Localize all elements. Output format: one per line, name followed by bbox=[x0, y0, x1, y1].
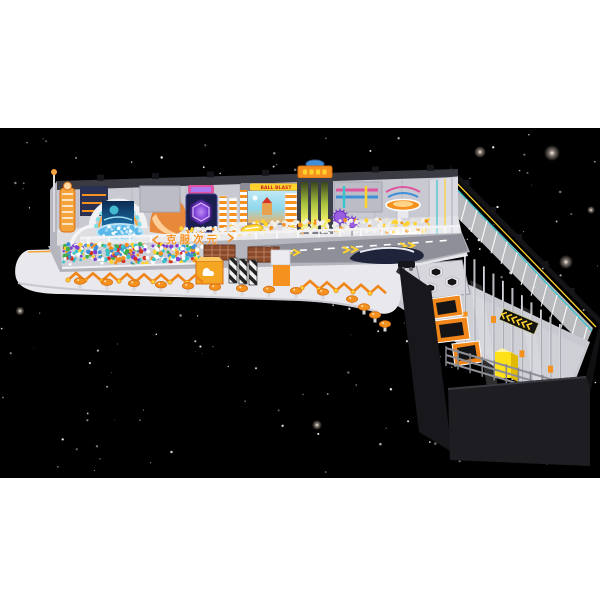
sign-glyph bbox=[316, 170, 320, 175]
star bbox=[302, 394, 303, 395]
pool-ball bbox=[121, 232, 124, 235]
truss-dot bbox=[334, 289, 338, 293]
stool-cap bbox=[101, 279, 112, 286]
pit-ball bbox=[400, 221, 403, 224]
pit-ball bbox=[212, 228, 215, 231]
star bbox=[406, 340, 408, 342]
crowd-ball bbox=[182, 257, 186, 261]
star bbox=[43, 138, 44, 139]
star bbox=[597, 266, 598, 267]
star bbox=[526, 172, 528, 174]
star bbox=[86, 419, 88, 421]
pit-ball bbox=[236, 226, 240, 230]
star bbox=[170, 451, 173, 454]
pit-ball bbox=[319, 221, 323, 225]
crowd-ball bbox=[114, 244, 117, 247]
star bbox=[273, 166, 275, 168]
star bbox=[62, 438, 64, 440]
truss-dot bbox=[66, 278, 70, 282]
crowd-ball bbox=[78, 243, 82, 247]
crowd-ball bbox=[122, 256, 126, 260]
wall-nub bbox=[372, 166, 379, 172]
crowd-ball bbox=[114, 247, 118, 251]
crowd-ball bbox=[137, 258, 140, 261]
star bbox=[156, 334, 158, 336]
star bbox=[355, 384, 357, 386]
crowd-ball bbox=[100, 261, 103, 264]
crowd-ball bbox=[103, 244, 107, 248]
pole-pad bbox=[548, 366, 553, 373]
star bbox=[459, 460, 461, 462]
stool-cap bbox=[209, 284, 220, 291]
ball-screen-title: BALL BLAST bbox=[261, 185, 293, 191]
crowd-ball bbox=[160, 246, 164, 250]
crowd-ball bbox=[133, 257, 137, 261]
pit-ball bbox=[229, 223, 232, 226]
pole-pad bbox=[491, 316, 496, 323]
pipe-machinery-wall bbox=[334, 182, 382, 212]
sign-glyph bbox=[310, 170, 314, 175]
star bbox=[2, 397, 4, 399]
star bbox=[583, 309, 585, 311]
crowd-ball bbox=[125, 249, 130, 254]
star bbox=[325, 471, 327, 473]
led-hexagon-climber bbox=[186, 185, 217, 232]
pit-ball bbox=[270, 223, 273, 226]
star bbox=[559, 274, 561, 276]
crowd-ball bbox=[114, 261, 117, 264]
crowd-ball bbox=[62, 250, 64, 252]
crowd-ball bbox=[81, 247, 84, 250]
disc-center bbox=[393, 201, 413, 207]
pit-ball bbox=[201, 229, 204, 232]
crowd-ball bbox=[93, 258, 96, 261]
stool-cap bbox=[236, 285, 247, 292]
star bbox=[276, 164, 277, 165]
stool-cap bbox=[128, 280, 139, 287]
crowd-ball bbox=[66, 247, 70, 251]
stool-highlight bbox=[382, 322, 384, 324]
pit-ball bbox=[425, 224, 428, 227]
star bbox=[99, 458, 100, 459]
glow-star bbox=[16, 307, 25, 316]
turnstile-bar bbox=[239, 259, 247, 284]
star bbox=[377, 330, 379, 332]
crowd-ball bbox=[62, 261, 65, 264]
star bbox=[197, 315, 198, 316]
star bbox=[440, 356, 441, 357]
star bbox=[429, 441, 431, 443]
crowd-ball bbox=[121, 245, 124, 248]
star bbox=[212, 346, 213, 347]
stool-highlight bbox=[239, 286, 241, 288]
stool-cap bbox=[182, 283, 193, 290]
crowd-ball bbox=[109, 260, 113, 264]
crowd-ball bbox=[143, 248, 146, 251]
crowd-ball bbox=[152, 257, 156, 261]
crowd-ball bbox=[143, 244, 146, 247]
stool-cap bbox=[379, 321, 390, 328]
pool-ball bbox=[113, 225, 116, 228]
pit-ball bbox=[421, 220, 424, 223]
tower-top bbox=[64, 182, 72, 190]
star bbox=[332, 304, 334, 306]
star bbox=[369, 150, 371, 152]
star bbox=[143, 410, 144, 411]
stool-cap bbox=[317, 289, 328, 296]
rover-wheel bbox=[409, 267, 413, 271]
crowd-ball bbox=[107, 242, 111, 246]
stool-cap bbox=[155, 281, 166, 288]
star bbox=[45, 140, 47, 142]
stool-highlight bbox=[212, 285, 214, 287]
crowd-ball bbox=[75, 250, 78, 253]
pit-ball bbox=[179, 226, 183, 230]
crowd-ball bbox=[197, 252, 200, 255]
pit-ball bbox=[276, 220, 279, 223]
pool-ball bbox=[135, 228, 139, 232]
crowd-ball bbox=[72, 252, 75, 255]
truss-dot bbox=[351, 290, 355, 294]
pit-ball bbox=[298, 223, 302, 227]
stool-cap bbox=[290, 287, 301, 294]
crowd-ball bbox=[114, 252, 118, 256]
pit-ball bbox=[375, 217, 379, 221]
crowd-ball bbox=[138, 242, 142, 246]
stool-highlight bbox=[349, 297, 351, 299]
star bbox=[1, 328, 3, 330]
stool-highlight bbox=[293, 289, 295, 291]
pole-pad bbox=[520, 350, 525, 357]
crowd-ball bbox=[69, 263, 72, 266]
fascia-sign-text: 克服次元 bbox=[166, 233, 220, 246]
star bbox=[76, 448, 78, 450]
roller-column bbox=[219, 196, 227, 232]
stool-cap bbox=[263, 286, 274, 293]
pool-ball bbox=[105, 233, 108, 236]
truss-dot bbox=[168, 280, 172, 284]
pit-ball bbox=[327, 219, 330, 222]
star bbox=[29, 207, 30, 208]
pool-ball bbox=[117, 227, 121, 231]
crowd-ball bbox=[87, 244, 90, 247]
crowd-ball bbox=[136, 254, 139, 257]
pit-ball bbox=[229, 227, 233, 231]
pit-ball bbox=[305, 220, 308, 223]
rail-nub bbox=[490, 207, 496, 213]
pool-ball bbox=[125, 231, 128, 234]
pool-ball bbox=[138, 229, 141, 232]
crowd-ball bbox=[146, 249, 150, 253]
star bbox=[255, 367, 257, 369]
crowd-ball bbox=[175, 257, 180, 262]
pool-ball bbox=[110, 228, 113, 231]
pit-ball bbox=[308, 221, 311, 224]
star bbox=[114, 420, 115, 421]
star bbox=[523, 231, 524, 232]
star bbox=[281, 425, 283, 427]
pit-ball bbox=[316, 224, 319, 227]
star bbox=[23, 188, 24, 189]
star bbox=[556, 221, 558, 223]
pit-ball bbox=[377, 224, 380, 227]
star bbox=[33, 348, 34, 349]
pit-ball bbox=[343, 218, 347, 222]
truss-dot bbox=[151, 280, 155, 284]
star bbox=[559, 191, 562, 194]
star bbox=[327, 393, 329, 395]
star bbox=[75, 157, 77, 159]
crowd-ball bbox=[134, 246, 139, 251]
star bbox=[203, 166, 205, 168]
stool-cap bbox=[369, 312, 380, 319]
pit-ball bbox=[355, 225, 358, 228]
lamp-bulb bbox=[51, 169, 57, 175]
crowd-ball bbox=[83, 257, 86, 260]
star bbox=[26, 142, 27, 143]
crowd-ball bbox=[146, 256, 150, 260]
pit-ball bbox=[304, 227, 306, 229]
pit-ball bbox=[334, 222, 337, 225]
star bbox=[117, 343, 118, 344]
crowd-ball bbox=[79, 259, 82, 262]
pit-ball bbox=[264, 222, 269, 227]
rail-nub bbox=[464, 180, 470, 186]
star bbox=[228, 366, 229, 367]
glow-star bbox=[544, 145, 560, 161]
crowd-ball bbox=[137, 261, 140, 264]
playground-render: BALL BLAST bbox=[0, 0, 600, 600]
star bbox=[195, 351, 196, 352]
rover bbox=[398, 261, 415, 268]
screen-planet bbox=[110, 206, 119, 215]
truss-dot bbox=[368, 291, 372, 295]
machinery-panel bbox=[140, 186, 180, 212]
star bbox=[160, 156, 162, 158]
pool-ball bbox=[131, 227, 134, 230]
rail-nub bbox=[542, 261, 548, 267]
star bbox=[139, 420, 140, 421]
star bbox=[390, 388, 393, 391]
crowd-ball bbox=[98, 258, 101, 261]
crowd-ball bbox=[130, 243, 134, 247]
truss-dot bbox=[117, 279, 121, 283]
star bbox=[97, 349, 99, 351]
pit-ball bbox=[288, 222, 292, 226]
pillar-top bbox=[271, 250, 290, 265]
pit-ball bbox=[191, 227, 194, 230]
front-wall bbox=[448, 376, 590, 466]
star bbox=[531, 185, 532, 186]
stool-cap bbox=[358, 304, 369, 311]
star bbox=[57, 466, 58, 467]
star bbox=[194, 340, 196, 342]
crowd-ball bbox=[186, 247, 190, 251]
crowd-ball bbox=[156, 248, 159, 251]
star bbox=[528, 134, 529, 135]
star bbox=[204, 144, 206, 146]
crowd-ball bbox=[181, 254, 184, 257]
pit-ball bbox=[196, 230, 200, 234]
star bbox=[89, 362, 91, 364]
star bbox=[111, 372, 112, 373]
crowd-ball bbox=[125, 243, 129, 247]
star bbox=[467, 239, 468, 240]
screen-cloud bbox=[253, 196, 258, 201]
star bbox=[469, 178, 471, 180]
star bbox=[347, 371, 350, 374]
pit-ball bbox=[349, 219, 353, 223]
pit-ball bbox=[238, 222, 242, 226]
sign-glyph bbox=[303, 170, 307, 175]
pit-ball bbox=[310, 224, 312, 226]
crowd-ball bbox=[74, 257, 77, 260]
star bbox=[451, 366, 453, 368]
crowd-ball bbox=[98, 250, 102, 254]
pit-ball bbox=[223, 227, 226, 230]
pit-ball bbox=[388, 221, 391, 224]
pit-ball bbox=[269, 226, 273, 230]
crowd-ball bbox=[80, 255, 83, 258]
crowd-ball bbox=[139, 249, 144, 254]
star bbox=[39, 312, 40, 313]
pit-ball bbox=[383, 219, 385, 221]
corner-pillar bbox=[271, 250, 290, 286]
entry-turnstile bbox=[229, 258, 257, 285]
pit-ball bbox=[368, 222, 371, 225]
pit-ball bbox=[427, 218, 429, 220]
star bbox=[492, 146, 494, 148]
star bbox=[404, 323, 405, 324]
star bbox=[434, 442, 437, 445]
star bbox=[397, 137, 399, 139]
star bbox=[87, 412, 89, 414]
star bbox=[549, 265, 550, 266]
stool-highlight bbox=[372, 313, 374, 315]
star bbox=[379, 443, 382, 446]
star bbox=[519, 170, 520, 171]
star bbox=[96, 445, 98, 447]
crowd-ball bbox=[158, 251, 163, 256]
pit-ball bbox=[394, 220, 398, 224]
turnstile-bar bbox=[249, 260, 257, 285]
pit-ball bbox=[294, 225, 296, 227]
crowd-ball bbox=[132, 251, 135, 254]
screen-column bbox=[240, 190, 247, 225]
star bbox=[278, 409, 280, 411]
crowd-ball bbox=[91, 246, 94, 249]
star bbox=[350, 334, 351, 335]
pool-ball bbox=[98, 231, 102, 235]
crowd-ball bbox=[180, 247, 184, 251]
stool-highlight bbox=[104, 280, 106, 282]
star bbox=[325, 138, 327, 140]
crowd-ball bbox=[119, 253, 122, 256]
pool-ball bbox=[107, 225, 111, 229]
turnstile-bar bbox=[229, 258, 237, 283]
wall-nub bbox=[262, 170, 269, 176]
star bbox=[219, 173, 221, 175]
crowd-ball bbox=[189, 253, 193, 257]
star bbox=[131, 161, 132, 162]
pool-ball bbox=[123, 227, 126, 230]
screen-castle bbox=[262, 203, 272, 215]
star bbox=[294, 169, 297, 172]
wall-nub bbox=[427, 165, 434, 171]
crowd-ball bbox=[185, 251, 188, 254]
star bbox=[523, 154, 525, 156]
pillar-front bbox=[273, 265, 290, 286]
stool-highlight bbox=[77, 279, 79, 281]
star bbox=[496, 206, 498, 208]
stool-cap bbox=[346, 296, 357, 303]
pool-ball bbox=[126, 225, 130, 229]
star bbox=[244, 400, 245, 401]
star bbox=[493, 224, 494, 225]
star bbox=[385, 428, 386, 429]
crowd-ball bbox=[75, 245, 79, 249]
stool-highlight bbox=[158, 283, 160, 285]
star bbox=[542, 268, 544, 270]
sign-glyph bbox=[323, 170, 327, 175]
wall-nub bbox=[207, 171, 214, 177]
hex-sign-screen bbox=[191, 187, 211, 192]
star bbox=[106, 386, 108, 388]
crowd-ball bbox=[195, 248, 199, 252]
star bbox=[594, 161, 595, 162]
star bbox=[595, 382, 597, 384]
glow-star bbox=[559, 255, 573, 269]
star bbox=[23, 182, 25, 184]
wall-nub bbox=[152, 173, 159, 179]
star bbox=[179, 314, 181, 316]
crowd-ball bbox=[151, 244, 154, 247]
star bbox=[94, 470, 95, 471]
crowd-ball bbox=[66, 242, 70, 246]
crowd-ball bbox=[171, 255, 175, 259]
star bbox=[570, 213, 572, 215]
pit-ball bbox=[385, 222, 388, 225]
star bbox=[317, 433, 319, 435]
stool-highlight bbox=[320, 290, 322, 292]
crowd-ball bbox=[85, 255, 89, 259]
star bbox=[10, 352, 12, 354]
pool-ball bbox=[105, 228, 109, 232]
pit-ball bbox=[412, 219, 415, 222]
pit-ball bbox=[185, 227, 188, 230]
stool-highlight bbox=[361, 305, 363, 307]
stool-highlight bbox=[266, 288, 268, 290]
star bbox=[273, 152, 275, 154]
star bbox=[150, 462, 151, 463]
crowd-ball bbox=[68, 255, 72, 259]
crowd-ball bbox=[64, 257, 67, 260]
star bbox=[14, 182, 16, 184]
crowd-ball bbox=[118, 259, 122, 263]
pit-ball bbox=[339, 219, 342, 222]
wall-nub bbox=[97, 175, 104, 181]
crowd-ball bbox=[105, 248, 109, 252]
crowd-ball bbox=[172, 247, 175, 250]
pit-ball bbox=[417, 220, 420, 223]
crowd-ball bbox=[93, 250, 97, 254]
pit-ball bbox=[363, 221, 366, 224]
glow-star bbox=[312, 420, 322, 430]
rail-nub bbox=[516, 234, 522, 240]
pit-ball bbox=[288, 227, 291, 230]
glow-star bbox=[474, 146, 486, 158]
star bbox=[407, 420, 409, 422]
